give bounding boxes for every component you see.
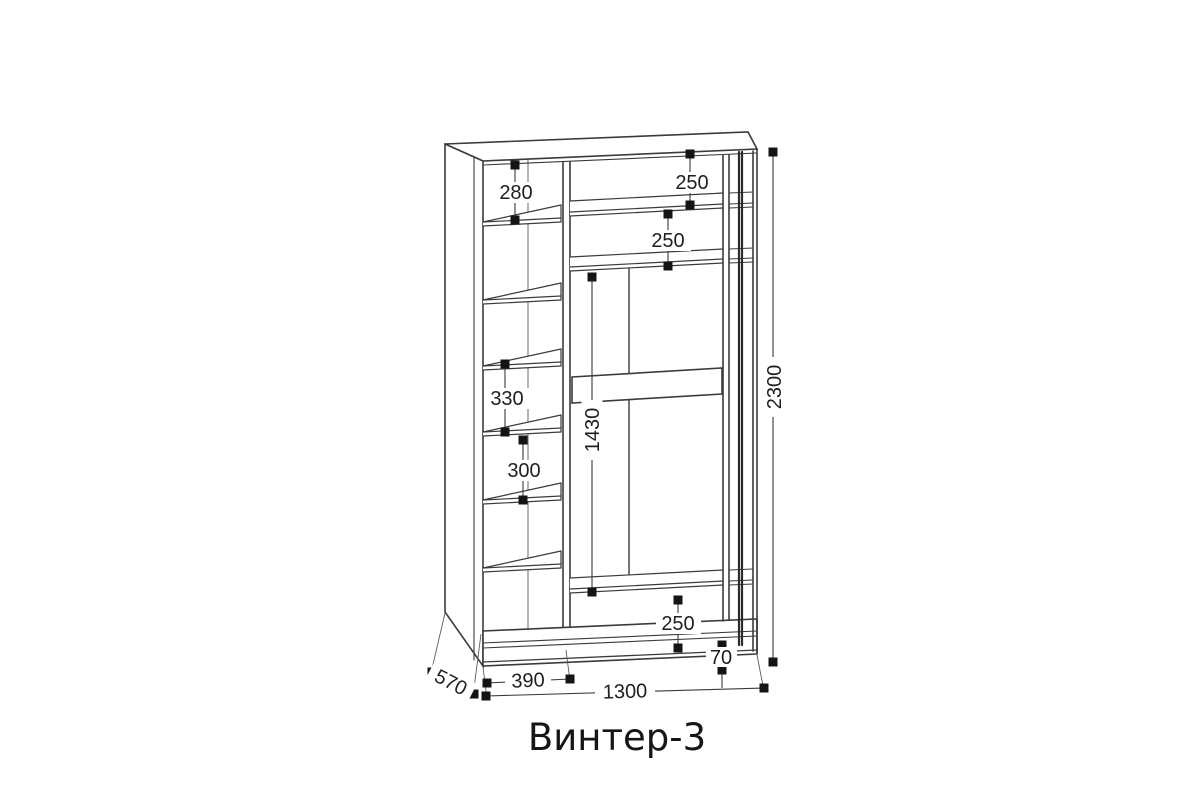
center-divider-panel bbox=[563, 162, 570, 627]
dim-label-1430: 1430 bbox=[582, 408, 604, 453]
left-side-panel bbox=[445, 144, 483, 666]
dim-label-300: 300 bbox=[507, 460, 540, 482]
right-partition-panel bbox=[723, 155, 729, 621]
top-panel bbox=[445, 132, 757, 165]
main-top-shelf bbox=[570, 193, 723, 216]
dim-label-250-bottom: 250 bbox=[661, 613, 694, 635]
sliding-door-track bbox=[739, 152, 742, 645]
dim-label-280: 280 bbox=[499, 182, 532, 204]
right-side-panel bbox=[753, 149, 757, 653]
shelf bbox=[483, 205, 561, 226]
main-second-shelf bbox=[570, 249, 723, 271]
dimension-390: 390 bbox=[483, 669, 575, 693]
hanging-rail-panel bbox=[572, 368, 722, 403]
dim-label-2300: 2300 bbox=[764, 365, 786, 410]
shelf bbox=[483, 415, 561, 436]
dim-label-390: 390 bbox=[511, 669, 545, 692]
product-title: Винтер-3 bbox=[528, 716, 706, 759]
dimension-70: 70 bbox=[706, 641, 737, 689]
technical-drawing-page: 280 250 250 330 bbox=[0, 0, 1200, 798]
dimension-2300: 2300 bbox=[764, 148, 787, 667]
dimension-1430: 1430 bbox=[582, 273, 605, 597]
dim-label-330: 330 bbox=[490, 388, 523, 410]
dimension-570: 570 bbox=[424, 662, 478, 704]
dim-label-1300: 1300 bbox=[602, 680, 647, 703]
dim-label-250-second: 250 bbox=[651, 230, 684, 252]
wardrobe-technical-drawing: 280 250 250 330 bbox=[0, 0, 1200, 798]
dim-label-250-top: 250 bbox=[675, 172, 708, 194]
dim-label-70: 70 bbox=[710, 647, 732, 669]
shelf bbox=[483, 283, 561, 304]
shelf bbox=[483, 551, 561, 572]
shelf bbox=[483, 349, 561, 370]
